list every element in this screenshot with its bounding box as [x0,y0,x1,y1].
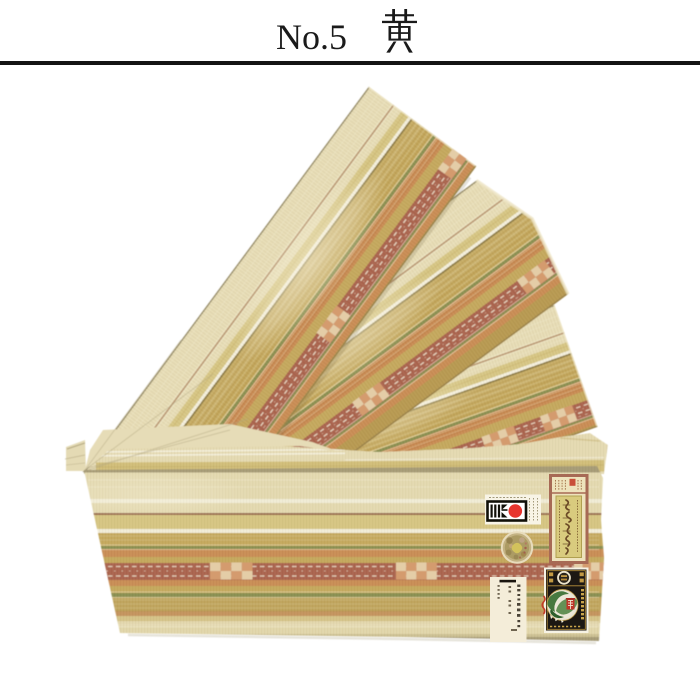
svg-text:No.5: No.5 [276,17,347,57]
